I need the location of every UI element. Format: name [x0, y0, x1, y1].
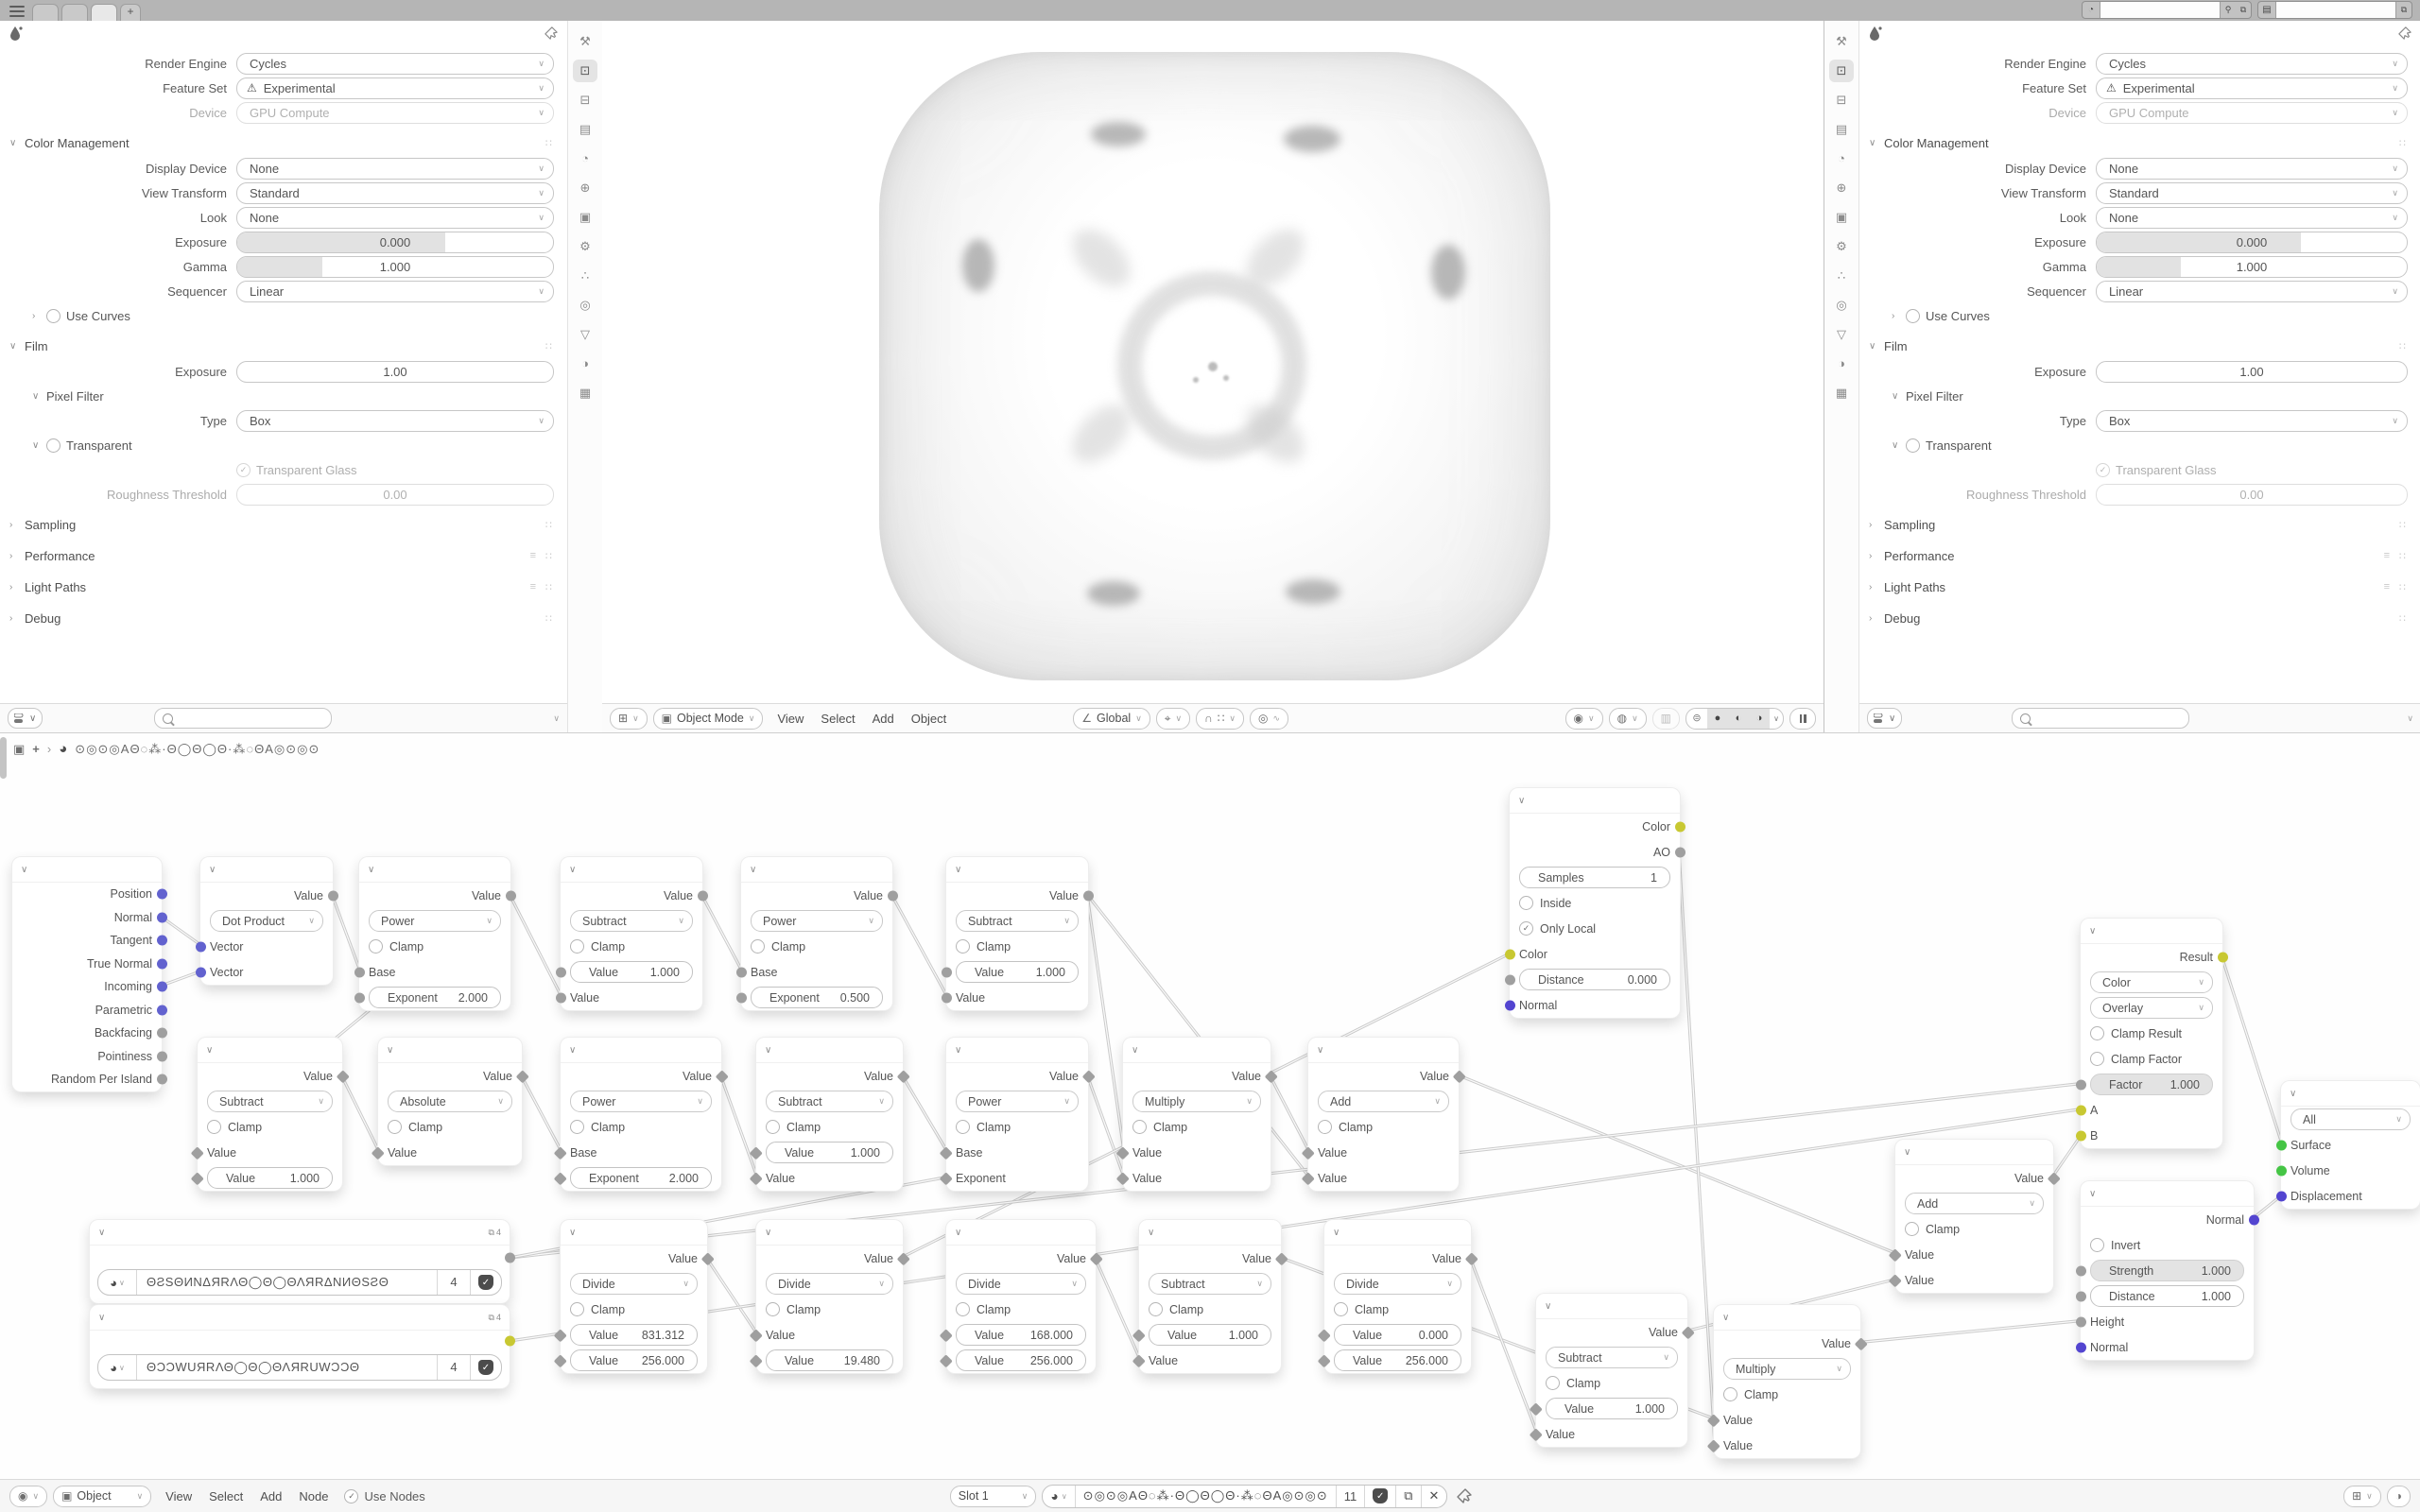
- operation-dropdown[interactable]: Overlay∨: [2090, 997, 2213, 1019]
- value-field[interactable]: Value831.312: [570, 1324, 698, 1346]
- input-socket[interactable]: [556, 992, 566, 1003]
- value-field[interactable]: Value256.000: [1334, 1349, 1461, 1371]
- menu-view[interactable]: View: [769, 712, 812, 726]
- checkbox-Clamp Result[interactable]: [2090, 1026, 2104, 1040]
- tab-material-icon[interactable]: ◑: [573, 352, 597, 375]
- operation-dropdown[interactable]: Subtract∨: [766, 1091, 893, 1112]
- output-socket[interactable]: [888, 890, 898, 901]
- value-field[interactable]: Exponent2.000: [570, 1167, 712, 1189]
- output-socket[interactable]: [505, 1336, 515, 1347]
- checkbox-Clamp[interactable]: [956, 1120, 970, 1134]
- new-scene-icon[interactable]: ⧉: [2236, 5, 2251, 15]
- tab-render-icon[interactable]: ⊡: [1829, 60, 1854, 82]
- input-socket[interactable]: [736, 992, 747, 1003]
- tab-object-data-icon[interactable]: ▽: [1829, 323, 1854, 346]
- value-field[interactable]: Value1.000: [1546, 1398, 1678, 1419]
- input-socket[interactable]: [191, 1172, 203, 1184]
- node-header[interactable]: ∨: [2081, 919, 2222, 944]
- new-view-layer-icon[interactable]: ⧉: [2396, 5, 2411, 15]
- node-abs1[interactable]: ∨ValueAbsolute∨ClampValue: [378, 1038, 522, 1165]
- input-socket[interactable]: [354, 967, 365, 977]
- collapse-chevron-icon[interactable]: ∨: [1317, 1045, 1323, 1056]
- node-ao[interactable]: ∨ColorAOSamples1Inside✓Only LocalColorDi…: [1510, 788, 1680, 1018]
- search-input[interactable]: [154, 708, 332, 729]
- operation-dropdown[interactable]: Add∨: [1318, 1091, 1449, 1112]
- section-Performance[interactable]: ›Performance≡∷: [0, 544, 567, 567]
- operation-dropdown[interactable]: Power∨: [956, 1091, 1079, 1112]
- input-socket[interactable]: [1505, 974, 1515, 985]
- input-socket[interactable]: [942, 992, 952, 1003]
- tab-world-icon[interactable]: ⊕: [1829, 177, 1854, 199]
- input-socket[interactable]: [2076, 1342, 2086, 1352]
- output-socket[interactable]: [2218, 952, 2228, 962]
- output-socket[interactable]: [1465, 1252, 1478, 1264]
- operation-dropdown[interactable]: Divide∨: [1334, 1273, 1461, 1295]
- Type-dropdown[interactable]: Box∨: [236, 410, 554, 432]
- tab-tool-icon[interactable]: ⚒: [573, 30, 597, 53]
- tab-texture-icon[interactable]: ▦: [1829, 382, 1854, 404]
- pin-scene-icon[interactable]: ⚲: [2221, 5, 2236, 15]
- shading-solid-button[interactable]: ●: [1707, 709, 1728, 729]
- output-socket[interactable]: [1082, 1070, 1095, 1082]
- input-socket[interactable]: [1318, 1329, 1330, 1341]
- input-socket[interactable]: [354, 992, 365, 1003]
- operation-dropdown[interactable]: Subtract∨: [1149, 1273, 1271, 1295]
- datablock-users-count[interactable]: 4: [437, 1270, 470, 1295]
- checkbox-Transparent Glass[interactable]: ✓Transparent Glass: [236, 463, 554, 477]
- mode-dropdown[interactable]: ▣Object Mode∨: [653, 708, 764, 730]
- output-socket[interactable]: [337, 1070, 349, 1082]
- input-socket[interactable]: [554, 1354, 566, 1366]
- pause-render-button[interactable]: [1789, 708, 1816, 730]
- number-field-Exposure[interactable]: 1.00: [2096, 361, 2408, 383]
- menu-node[interactable]: Node: [290, 1489, 337, 1503]
- checkbox-Clamp[interactable]: [570, 1120, 584, 1134]
- checkbox-Clamp[interactable]: [1318, 1120, 1332, 1134]
- node-header[interactable]: ∨: [741, 857, 892, 883]
- output-socket[interactable]: [328, 890, 338, 901]
- output-socket[interactable]: [1083, 890, 1094, 901]
- datablock-name[interactable]: ΘƧSΘИNΔЯRΛΘ◯Θ◯ΘΛЯRΔNИΘSƧΘ: [137, 1275, 437, 1290]
- Display Device-dropdown[interactable]: None∨: [236, 158, 554, 180]
- add-workspace-button[interactable]: +: [120, 4, 141, 21]
- input-socket[interactable]: [1505, 1000, 1515, 1010]
- checkbox-Clamp[interactable]: [207, 1120, 221, 1134]
- snap-toggle[interactable]: ∩∷∨: [1196, 708, 1244, 730]
- collapse-chevron-icon[interactable]: ∨: [1132, 1045, 1138, 1056]
- tab-output-icon[interactable]: ⊟: [1829, 89, 1854, 112]
- input-socket[interactable]: [750, 1146, 762, 1159]
- subsection-checkbox[interactable]: [1906, 438, 1920, 453]
- input-socket[interactable]: [1707, 1414, 1720, 1426]
- node-header[interactable]: ∨: [561, 857, 702, 883]
- output-socket[interactable]: [157, 958, 167, 969]
- collapse-chevron-icon[interactable]: ∨: [98, 1313, 105, 1323]
- output-socket[interactable]: [897, 1252, 909, 1264]
- subsection-Use Curves[interactable]: ›Use Curves: [1859, 305, 2420, 326]
- collapse-chevron-icon[interactable]: ∨: [2089, 1189, 2096, 1199]
- output-socket[interactable]: [157, 1005, 167, 1015]
- checkbox-Clamp[interactable]: [751, 939, 765, 954]
- tab-view-layer-icon[interactable]: ▤: [573, 118, 597, 141]
- checkbox-Clamp[interactable]: [766, 1120, 780, 1134]
- checkbox-Invert[interactable]: [2090, 1238, 2104, 1252]
- shading-wireframe-button[interactable]: ⊜: [1686, 709, 1707, 729]
- value-field[interactable]: Distance1.000: [2090, 1285, 2244, 1307]
- subsection-Pixel Filter[interactable]: ∨Pixel Filter: [0, 386, 567, 406]
- collapse-chevron-icon[interactable]: ∨: [750, 865, 756, 875]
- editor-type-button[interactable]: ⊞∨: [610, 708, 648, 730]
- operation-dropdown[interactable]: Color∨: [2090, 971, 2213, 993]
- input-socket[interactable]: [191, 1146, 203, 1159]
- output-socket[interactable]: [2048, 1172, 2060, 1184]
- editor-type-button-nodes[interactable]: ◉∨: [9, 1486, 47, 1507]
- output-socket[interactable]: [1675, 847, 1685, 857]
- input-socket[interactable]: [1116, 1146, 1129, 1159]
- node-sub6[interactable]: ∨ValueSubtract∨ClampValue1.000Value: [1536, 1294, 1687, 1447]
- pin-icon[interactable]: [544, 26, 558, 44]
- node-div4[interactable]: ∨ValueDivide∨ClampValue0.000Value256.000: [1324, 1220, 1471, 1373]
- node-header[interactable]: ∨: [561, 1038, 721, 1063]
- new-material-button[interactable]: ⧉: [1396, 1486, 1421, 1507]
- checkbox-Inside[interactable]: [1519, 896, 1533, 910]
- input-socket[interactable]: [942, 967, 952, 977]
- output-socket[interactable]: [516, 1070, 528, 1082]
- menu-add[interactable]: Add: [864, 712, 903, 726]
- checkbox-Transparent Glass[interactable]: ✓Transparent Glass: [2096, 463, 2408, 477]
- shading-options-caret[interactable]: ∨: [1770, 709, 1783, 729]
- operation-dropdown[interactable]: Power∨: [570, 1091, 712, 1112]
- input-socket[interactable]: [1116, 1172, 1129, 1184]
- operation-dropdown[interactable]: All∨: [2290, 1108, 2411, 1130]
- value-field[interactable]: Value0.000: [1334, 1324, 1461, 1346]
- node-mat1[interactable]: ∨⧉4◕∨ΘƧSΘИNΔЯRΛΘ◯Θ◯ΘΛЯRΔNИΘSƧΘ4✓: [90, 1220, 510, 1303]
- checkbox-Clamp[interactable]: [1132, 1120, 1147, 1134]
- output-socket[interactable]: [716, 1070, 728, 1082]
- tab-modifiers-icon[interactable]: ⚙: [573, 235, 597, 258]
- tab-physics-icon[interactable]: ◎: [1829, 294, 1854, 317]
- operation-dropdown[interactable]: Subtract∨: [207, 1091, 333, 1112]
- fake-user-button[interactable]: ✓: [470, 1270, 501, 1295]
- node-header[interactable]: ∨: [200, 857, 333, 883]
- node-mul1[interactable]: ∨ValueMultiply∨ClampValueValue: [1123, 1038, 1270, 1191]
- section-Debug[interactable]: ›Debug∷: [1859, 607, 2420, 629]
- output-socket[interactable]: [157, 1051, 167, 1061]
- viewport-render[interactable]: [602, 21, 1824, 704]
- node-pow1[interactable]: ∨ValuePower∨ClampBaseExponent2.000: [359, 857, 510, 1010]
- preset-list-icon[interactable]: ≡: [530, 550, 536, 562]
- menu-select[interactable]: Select: [200, 1489, 251, 1503]
- viewport-3d[interactable]: ⊞∨ ▣Object Mode∨ View Select Add Object …: [602, 21, 1824, 732]
- input-socket[interactable]: [2276, 1140, 2287, 1150]
- drag-handle-icon[interactable]: ∷: [545, 612, 552, 625]
- value-field[interactable]: Strength1.000: [2090, 1260, 2244, 1281]
- pin-icon[interactable]: [1457, 1488, 1472, 1503]
- pin-icon[interactable]: [2398, 26, 2411, 44]
- node-pow2[interactable]: ∨ValuePower∨ClampBaseExponent0.500: [741, 857, 892, 1010]
- node-header[interactable]: ∨: [946, 1038, 1088, 1063]
- workspace-tab-active[interactable]: [91, 4, 117, 21]
- Look-dropdown[interactable]: None∨: [2096, 207, 2408, 229]
- output-socket[interactable]: [1855, 1337, 1867, 1349]
- slider-Gamma[interactable]: 1.000: [236, 256, 554, 278]
- checkbox-Clamp[interactable]: [956, 939, 970, 954]
- value-field[interactable]: Value1.000: [570, 961, 693, 983]
- Display Device-dropdown[interactable]: None∨: [2096, 158, 2408, 180]
- collapse-chevron-icon[interactable]: ∨: [21, 865, 27, 875]
- node-header[interactable]: ∨: [359, 857, 510, 883]
- value-field[interactable]: Exponent0.500: [751, 987, 883, 1008]
- output-socket[interactable]: [1275, 1252, 1288, 1264]
- checkbox-Clamp[interactable]: [766, 1302, 780, 1316]
- shading-material-button[interactable]: ◐: [1728, 709, 1749, 729]
- output-socket[interactable]: [157, 912, 167, 922]
- falloff-icon[interactable]: ∿: [1272, 713, 1280, 724]
- node-dot[interactable]: ∨ValueDot Product∨VectorVector: [200, 857, 333, 985]
- tab-particles-icon[interactable]: ∴: [573, 265, 597, 287]
- scrollbar[interactable]: [0, 737, 7, 779]
- checkbox-Clamp Factor[interactable]: [2090, 1052, 2104, 1066]
- subsection-Use Curves[interactable]: ›Use Curves: [0, 305, 567, 326]
- section-Light Paths[interactable]: ›Light Paths≡∷: [1859, 576, 2420, 598]
- show-gizmo-dropdown[interactable]: ◉∨: [1565, 708, 1603, 730]
- menu-view[interactable]: View: [157, 1489, 200, 1503]
- menu-icon[interactable]: [9, 6, 25, 17]
- operation-dropdown[interactable]: Subtract∨: [956, 910, 1079, 932]
- collapse-chevron-icon[interactable]: ∨: [765, 1228, 771, 1238]
- slider-Exposure[interactable]: 0.000: [2096, 232, 2408, 253]
- view-layer-selector[interactable]: ▤ ⧉: [2257, 1, 2412, 19]
- input-socket[interactable]: [1530, 1428, 1542, 1440]
- input-socket[interactable]: [940, 1329, 952, 1341]
- input-socket[interactable]: [750, 1329, 762, 1341]
- Render Engine-dropdown[interactable]: Cycles∨: [236, 53, 554, 75]
- tab-object-icon[interactable]: ▣: [573, 206, 597, 229]
- number-field-Roughness Threshold[interactable]: 0.00: [2096, 484, 2408, 506]
- node-header[interactable]: ∨: [12, 857, 162, 883]
- tab-scene-icon[interactable]: ◔: [1829, 147, 1854, 170]
- operation-dropdown[interactable]: Power∨: [751, 910, 883, 932]
- collapse-chevron-icon[interactable]: ∨: [955, 1228, 961, 1238]
- value-field[interactable]: Value256.000: [956, 1349, 1086, 1371]
- node-header[interactable]: ∨: [1510, 788, 1680, 814]
- node-header[interactable]: ∨: [756, 1038, 903, 1063]
- input-socket[interactable]: [1707, 1439, 1720, 1452]
- preset-list-icon[interactable]: ≡: [2384, 581, 2390, 593]
- output-socket[interactable]: [698, 890, 708, 901]
- input-socket[interactable]: [940, 1354, 952, 1366]
- section-Color Management[interactable]: ∨Color Management∷: [1859, 131, 2420, 154]
- Type-dropdown[interactable]: Box∨: [2096, 410, 2408, 432]
- shader-node-editor[interactable]: ∨PositionNormalTangentTrue NormalIncomin…: [0, 732, 2420, 1480]
- input-socket[interactable]: [2076, 1291, 2086, 1301]
- workspace-tab-2[interactable]: [61, 4, 88, 21]
- checkbox-Clamp[interactable]: [1334, 1302, 1348, 1316]
- drag-handle-icon[interactable]: ∷: [545, 550, 552, 562]
- input-socket[interactable]: [2076, 1130, 2086, 1141]
- output-socket[interactable]: [157, 889, 167, 900]
- editor-switch-button[interactable]: ∨: [8, 708, 43, 729]
- value-field[interactable]: Value256.000: [570, 1349, 698, 1371]
- node-geo[interactable]: ∨PositionNormalTangentTrue NormalIncomin…: [12, 857, 162, 1091]
- collapse-chevron-icon[interactable]: ∨: [387, 1045, 393, 1056]
- slider-Exposure[interactable]: 0.000: [236, 232, 554, 253]
- Sequencer-dropdown[interactable]: Linear∨: [2096, 281, 2408, 302]
- checkbox-Clamp[interactable]: [1546, 1376, 1560, 1390]
- checkbox-Clamp[interactable]: [1149, 1302, 1163, 1316]
- node-header[interactable]: ∨: [946, 857, 1088, 883]
- node-add1[interactable]: ∨ValueAdd∨ClampValueValue: [1308, 1038, 1459, 1191]
- input-socket[interactable]: [750, 1172, 762, 1184]
- operation-dropdown[interactable]: Divide∨: [570, 1273, 698, 1295]
- Feature Set-dropdown[interactable]: ⚠Experimental∨: [236, 77, 554, 99]
- node-header[interactable]: ∨: [946, 1220, 1096, 1246]
- collapse-chevron-icon[interactable]: ∨: [1722, 1313, 1729, 1323]
- subsection-Pixel Filter[interactable]: ∨Pixel Filter: [1859, 386, 2420, 406]
- material-browse-button[interactable]: ◕∨: [1043, 1486, 1075, 1507]
- material-browse-button[interactable]: ◕∨: [98, 1270, 137, 1295]
- input-socket[interactable]: [2276, 1191, 2287, 1201]
- collapse-chevron-icon[interactable]: ∨: [206, 1045, 213, 1056]
- drag-handle-icon[interactable]: ∷: [545, 519, 552, 531]
- checkbox-Clamp[interactable]: [570, 1302, 584, 1316]
- View Transform-dropdown[interactable]: Standard∨: [236, 182, 554, 204]
- menu-select[interactable]: Select: [812, 712, 863, 726]
- input-socket[interactable]: [2076, 1316, 2086, 1327]
- node-header[interactable]: ∨: [1308, 1038, 1459, 1063]
- proportional-editing-toggle[interactable]: ◎∿: [1250, 708, 1288, 730]
- section-Performance[interactable]: ›Performance≡∷: [1859, 544, 2420, 567]
- input-socket[interactable]: [554, 1329, 566, 1341]
- value-field[interactable]: Value1.000: [766, 1142, 893, 1163]
- drag-handle-icon[interactable]: ∷: [2399, 137, 2406, 149]
- operation-dropdown[interactable]: Absolute∨: [388, 1091, 512, 1112]
- collapse-chevron-icon[interactable]: ∨: [569, 1045, 576, 1056]
- input-socket[interactable]: [750, 1354, 762, 1366]
- output-socket[interactable]: [897, 1070, 909, 1082]
- value-field[interactable]: Value1.000: [1149, 1324, 1271, 1346]
- tab-render-icon[interactable]: ⊡: [573, 60, 597, 82]
- checkbox-Clamp[interactable]: [1723, 1387, 1737, 1401]
- collapse-chevron-icon[interactable]: ∨: [553, 713, 560, 724]
- drag-handle-icon[interactable]: ∷: [2399, 340, 2406, 352]
- tab-physics-icon[interactable]: ◎: [573, 294, 597, 317]
- tab-object-data-icon[interactable]: ▽: [573, 323, 597, 346]
- Sequencer-dropdown[interactable]: Linear∨: [236, 281, 554, 302]
- drag-handle-icon[interactable]: ∷: [545, 581, 552, 593]
- collapse-chevron-icon[interactable]: ∨: [2407, 713, 2413, 724]
- node-add2[interactable]: ∨ValueAdd∨ClampValueValue: [1895, 1140, 2053, 1293]
- input-socket[interactable]: [940, 1146, 952, 1159]
- operation-dropdown[interactable]: Power∨: [369, 910, 501, 932]
- drag-handle-icon[interactable]: ∷: [2399, 550, 2406, 562]
- tab-modifiers-icon[interactable]: ⚙: [1829, 235, 1854, 258]
- value-field[interactable]: Exponent2.000: [369, 987, 501, 1008]
- collapse-chevron-icon[interactable]: ∨: [1904, 1147, 1910, 1158]
- datablock-users-count[interactable]: 4: [437, 1355, 470, 1380]
- checkbox-Clamp[interactable]: [956, 1302, 970, 1316]
- node-outn[interactable]: ∨All∨SurfaceVolumeDisplacement: [2281, 1081, 2420, 1209]
- drag-handle-icon[interactable]: ∷: [2399, 519, 2406, 531]
- use-nodes-checkbox[interactable]: ✓Use Nodes: [344, 1489, 424, 1503]
- tab-tool-icon[interactable]: ⚒: [1829, 30, 1854, 53]
- collapse-chevron-icon[interactable]: ∨: [955, 1045, 961, 1056]
- material-name-field[interactable]: ⊙◎⊙◎AΘ◌⁂·Θ◯Θ◯Θ·⁂◌ΘA◎⊙◎⊙: [1076, 1486, 1337, 1507]
- input-socket[interactable]: [2076, 1079, 2086, 1090]
- tab-scene-icon[interactable]: ◔: [573, 147, 597, 170]
- input-socket[interactable]: [372, 1146, 384, 1159]
- checkbox-Clamp[interactable]: [570, 939, 584, 954]
- node-sub5[interactable]: ∨ValueSubtract∨ClampValue1.000Value: [1139, 1220, 1281, 1373]
- datablock-name[interactable]: ΘƆƆWUЯRΛΘ◯Θ◯ΘΛЯRUWƆƆΘ: [137, 1360, 437, 1375]
- input-socket[interactable]: [1505, 949, 1515, 959]
- collapse-chevron-icon[interactable]: ∨: [1333, 1228, 1340, 1238]
- value-field[interactable]: Distance0.000: [1519, 969, 1670, 990]
- node-header[interactable]: ∨: [561, 1220, 707, 1246]
- node-header[interactable]: ∨⧉4: [90, 1220, 510, 1246]
- output-socket[interactable]: [1453, 1070, 1465, 1082]
- tab-material-icon[interactable]: ◑: [1829, 352, 1854, 375]
- value-field[interactable]: Value19.480: [766, 1349, 893, 1371]
- output-socket[interactable]: [1090, 1252, 1102, 1264]
- node-header[interactable]: ∨: [2281, 1081, 2420, 1107]
- output-socket[interactable]: [1682, 1326, 1694, 1338]
- input-socket[interactable]: [1530, 1402, 1542, 1415]
- subsection-checkbox[interactable]: [46, 438, 60, 453]
- preset-list-icon[interactable]: ≡: [2384, 550, 2390, 562]
- datablock-row[interactable]: ◕∨ΘƧSΘИNΔЯRΛΘ◯Θ◯ΘΛЯRΔNИΘSƧΘ4✓: [97, 1269, 502, 1296]
- subsection-Transparent[interactable]: ∨Transparent: [0, 435, 567, 455]
- shading-rendered-button[interactable]: ◑: [1749, 709, 1770, 729]
- workspace-tab-1[interactable]: [32, 4, 59, 21]
- node-sub3[interactable]: ∨ValueSubtract∨ClampValueValue1.000: [198, 1038, 342, 1191]
- output-socket[interactable]: [157, 1028, 167, 1039]
- View Transform-dropdown[interactable]: Standard∨: [2096, 182, 2408, 204]
- input-socket[interactable]: [554, 1172, 566, 1184]
- Device-dropdown[interactable]: GPU Compute∨: [2096, 102, 2408, 124]
- node-div2[interactable]: ∨ValueDivide∨ClampValueValue19.480: [756, 1220, 903, 1373]
- tab-object-icon[interactable]: ▣: [1829, 206, 1854, 229]
- operation-dropdown[interactable]: Add∨: [1905, 1193, 2044, 1214]
- view-layer-field[interactable]: [2275, 2, 2396, 18]
- collapse-chevron-icon[interactable]: ∨: [1545, 1301, 1551, 1312]
- slot-dropdown[interactable]: Slot 1∨: [950, 1486, 1037, 1507]
- output-socket[interactable]: [2249, 1214, 2259, 1225]
- overlays-dropdown[interactable]: ◍∨: [1609, 708, 1647, 730]
- section-Sampling[interactable]: ›Sampling∷: [0, 513, 567, 536]
- operation-dropdown[interactable]: Multiply∨: [1723, 1358, 1851, 1380]
- node-header[interactable]: ∨: [1139, 1220, 1281, 1246]
- drag-handle-icon[interactable]: ∷: [545, 137, 552, 149]
- scene-selector[interactable]: ◔ ⚲ ⧉: [2082, 1, 2252, 19]
- value-field[interactable]: Value1.000: [207, 1167, 333, 1189]
- slider-Gamma[interactable]: 1.000: [2096, 256, 2408, 278]
- output-socket[interactable]: [701, 1252, 714, 1264]
- operation-dropdown[interactable]: Divide∨: [956, 1273, 1086, 1295]
- collapse-chevron-icon[interactable]: ∨: [209, 865, 216, 875]
- value-field[interactable]: Value1.000: [956, 961, 1079, 983]
- Look-dropdown[interactable]: None∨: [236, 207, 554, 229]
- datablock-row[interactable]: ◕∨ΘƆƆWUЯRΛΘ◯Θ◯ΘΛЯRUWƆƆΘ4✓: [97, 1354, 502, 1381]
- node-header[interactable]: ∨: [1895, 1140, 2053, 1165]
- tab-view-layer-icon[interactable]: ▤: [1829, 118, 1854, 141]
- operation-dropdown[interactable]: Subtract∨: [570, 910, 693, 932]
- value-field[interactable]: Value168.000: [956, 1324, 1086, 1346]
- input-socket[interactable]: [2076, 1265, 2086, 1276]
- node-div3[interactable]: ∨ValueDivide∨ClampValue168.000Value256.0…: [946, 1220, 1096, 1373]
- node-div1[interactable]: ∨ValueDivide∨ClampValue831.312Value256.0…: [561, 1220, 707, 1373]
- collapse-chevron-icon[interactable]: ∨: [569, 1228, 576, 1238]
